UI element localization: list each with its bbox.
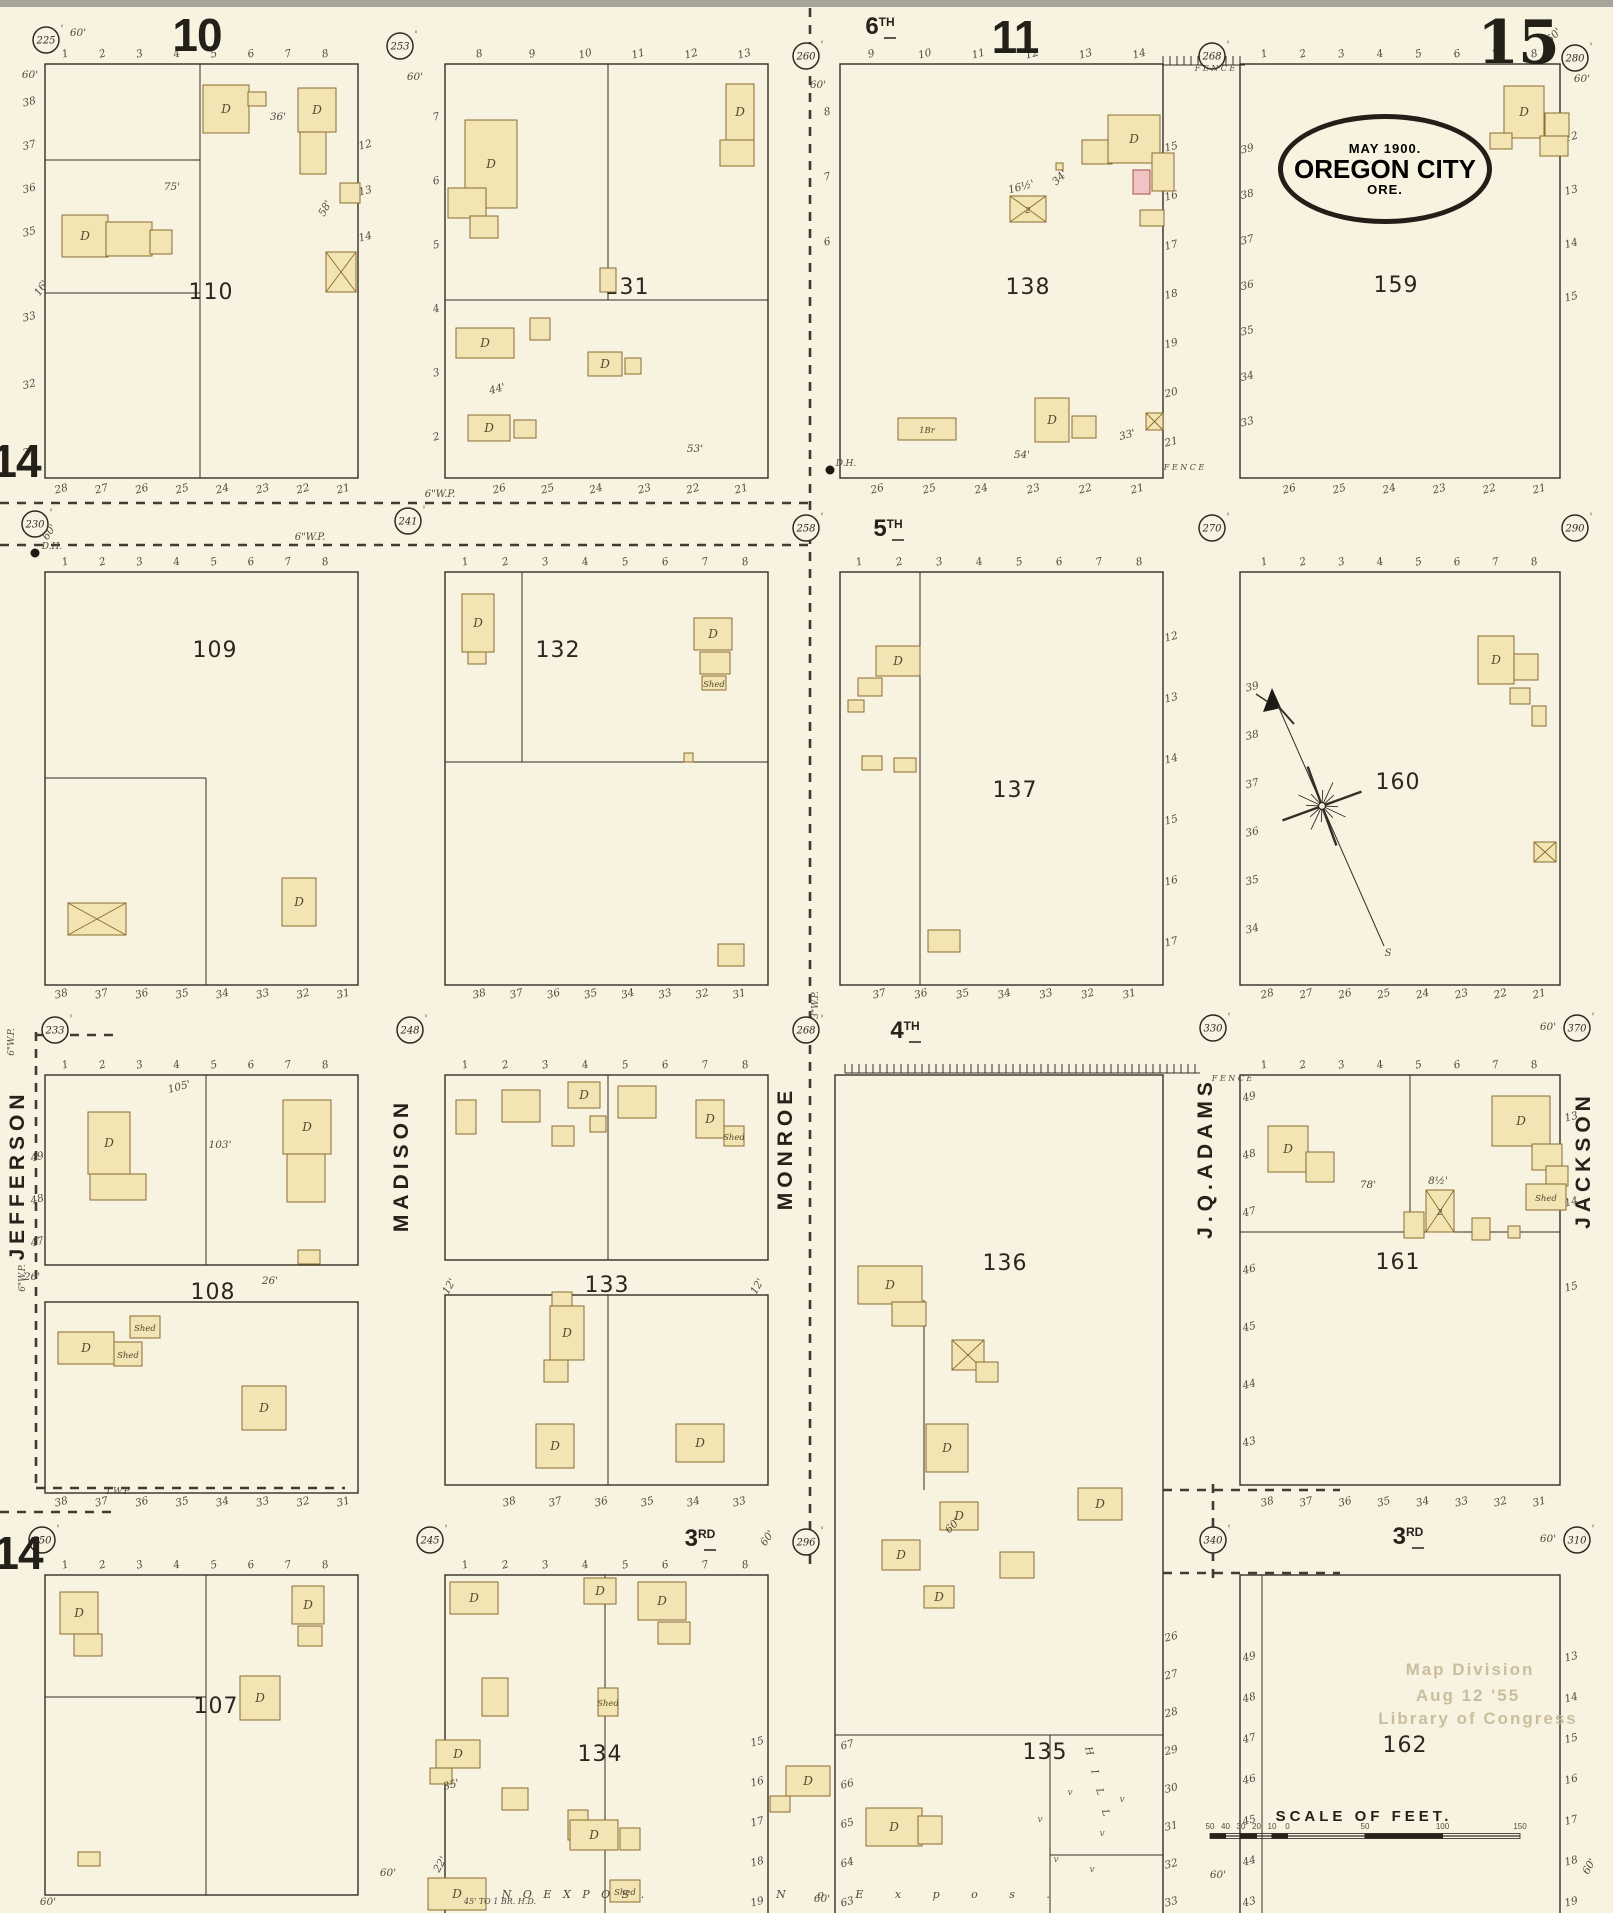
lot-number: 32 bbox=[1492, 1495, 1508, 1510]
lot-number: 65 bbox=[839, 1816, 855, 1831]
lot-number: 33 bbox=[255, 987, 271, 1002]
annotation: 60' bbox=[1540, 1533, 1556, 1545]
annotation: 6"W.P. bbox=[425, 489, 456, 500]
lot-number: 49 bbox=[1240, 1090, 1257, 1105]
block-number-162: 162 bbox=[1383, 1733, 1428, 1758]
lot-number: 5 bbox=[621, 555, 631, 568]
building-label: D bbox=[895, 1548, 906, 1562]
building-label: D bbox=[561, 1326, 572, 1340]
lot-number: 34 bbox=[1244, 922, 1260, 937]
lot-number: 7 bbox=[283, 47, 293, 60]
lot-number: 1 bbox=[61, 47, 70, 60]
building-frame bbox=[1510, 688, 1530, 704]
scale-bar-segment bbox=[1272, 1834, 1288, 1839]
page-ref-prime: ' bbox=[821, 40, 824, 51]
building-label: D bbox=[1282, 1142, 1293, 1156]
lot-number: 7 bbox=[1491, 555, 1501, 568]
building-frame bbox=[448, 188, 486, 218]
lot-number: 47 bbox=[1240, 1205, 1257, 1220]
compass-ornament-stroke bbox=[1278, 706, 1294, 724]
page-ref-prime: ' bbox=[821, 1014, 824, 1025]
lot-number: 31 bbox=[335, 1495, 351, 1510]
building-frame bbox=[892, 1302, 926, 1326]
lot-number: 36 bbox=[1337, 1495, 1353, 1510]
page-ref-number: 230 bbox=[24, 520, 45, 531]
lot-number: 12 bbox=[357, 138, 373, 153]
annotation: 60' bbox=[1540, 1021, 1556, 1033]
lot-number: 32 bbox=[295, 1495, 311, 1510]
street-name-3RD: 3RD bbox=[685, 1525, 716, 1552]
building-label: D bbox=[254, 1691, 265, 1705]
lot-number: 6 bbox=[661, 555, 671, 568]
annotation: 60' bbox=[380, 1867, 396, 1879]
building-frame bbox=[894, 758, 916, 772]
lot-number: 32 bbox=[21, 377, 37, 392]
building-label: D bbox=[293, 895, 304, 909]
page-ref-number: 290 bbox=[1564, 524, 1585, 535]
page-ref-number: 270 bbox=[1201, 524, 1222, 535]
lot-number: 36 bbox=[1244, 825, 1260, 840]
lot-number: 67 bbox=[839, 1738, 855, 1753]
lot-number: 28 bbox=[1162, 1705, 1179, 1720]
lot-number: 26 bbox=[1280, 482, 1297, 497]
lot-number: 2 bbox=[431, 430, 442, 444]
lot-number: 38 bbox=[53, 987, 69, 1002]
street-name-6TH: 6TH bbox=[865, 13, 894, 40]
lot-number: 13 bbox=[1078, 47, 1094, 62]
building-frame bbox=[150, 230, 172, 254]
building-frame bbox=[1404, 1212, 1424, 1238]
lot-number: 18 bbox=[749, 1855, 765, 1870]
annotation: 36' bbox=[270, 111, 286, 123]
annotation: 60' bbox=[1580, 1856, 1599, 1876]
lot-number: 46 bbox=[1240, 1262, 1257, 1277]
lot-number: 17 bbox=[1163, 238, 1179, 253]
building-label: D bbox=[694, 1436, 705, 1450]
lot-number: 7 bbox=[1491, 1058, 1501, 1071]
page-ref-prime: ' bbox=[821, 1526, 824, 1537]
page-ref-number: 296 bbox=[795, 1538, 816, 1549]
annotation: 12' bbox=[440, 1276, 459, 1296]
lot-number: 4 bbox=[974, 555, 984, 569]
lot-number: 5 bbox=[209, 1558, 219, 1571]
lot-number: 31 bbox=[1121, 987, 1137, 1002]
lot-number: 3 bbox=[541, 555, 551, 568]
lot-number: 34 bbox=[685, 1495, 701, 1510]
page-ref-prime: ' bbox=[1227, 40, 1230, 51]
lot-number: 3 bbox=[1337, 1058, 1347, 1071]
lot-number: 34 bbox=[214, 987, 230, 1002]
lot-number: 24 bbox=[214, 482, 231, 497]
annotation: v bbox=[1037, 1815, 1042, 1825]
lot-number: 23 bbox=[636, 482, 653, 497]
annotation: 105' bbox=[167, 1078, 192, 1096]
annotation: 44' bbox=[487, 381, 507, 397]
building-label: D bbox=[802, 1774, 813, 1788]
block-number-132: 132 bbox=[536, 638, 581, 663]
lot-number: 3 bbox=[432, 366, 442, 379]
lot-number: 19 bbox=[1163, 336, 1179, 351]
page-ref-prime: ' bbox=[1592, 1524, 1595, 1535]
lot-number: 13 bbox=[1563, 1650, 1579, 1665]
building-label: D bbox=[258, 1401, 269, 1415]
building-frame bbox=[620, 1828, 640, 1850]
building-label: Shed bbox=[723, 1133, 745, 1143]
page-ref-number: 241 bbox=[397, 517, 417, 528]
compass-south-label: S bbox=[1385, 948, 1392, 959]
annotation: 3"W.P. bbox=[811, 991, 821, 1019]
lot-number: 17 bbox=[1163, 935, 1179, 950]
lot-number: 14 bbox=[1563, 1690, 1579, 1705]
block-number-109: 109 bbox=[193, 638, 238, 663]
annotation: D.H. bbox=[41, 542, 63, 552]
building-frame bbox=[482, 1678, 508, 1716]
lot-number: 37 bbox=[508, 987, 524, 1002]
lot-number: 36 bbox=[134, 1495, 150, 1510]
lot-number: 14 bbox=[1563, 236, 1579, 251]
annotation: 78' bbox=[1360, 1179, 1376, 1191]
building-label: D bbox=[888, 1820, 899, 1834]
lot-number: 7 bbox=[1095, 555, 1105, 568]
page-ref-number: 245 bbox=[419, 1536, 439, 1547]
lot-number: 4 bbox=[171, 1558, 181, 1572]
lot-number: 17 bbox=[749, 1815, 765, 1830]
building-frame bbox=[340, 183, 360, 203]
building-frame bbox=[502, 1788, 528, 1810]
lot-number: 33 bbox=[21, 310, 37, 325]
page-ref-number: 248 bbox=[399, 1026, 419, 1037]
lot-number: 2 bbox=[97, 1558, 108, 1572]
lot-number: 4 bbox=[1374, 555, 1384, 569]
building-frame bbox=[300, 132, 326, 174]
map-title-state: ORE. bbox=[1367, 182, 1403, 197]
lot-number: 31 bbox=[1163, 1819, 1179, 1834]
building-frame bbox=[625, 358, 641, 374]
page-ref-prime: ' bbox=[70, 1014, 73, 1025]
lot-number: 31 bbox=[335, 987, 351, 1002]
building-frame bbox=[600, 268, 616, 292]
building-label: 2 bbox=[1436, 1208, 1442, 1218]
lot-number: 5 bbox=[209, 555, 219, 568]
lot-number: 2 bbox=[500, 1558, 511, 1572]
page-ref-number: 253 bbox=[389, 42, 409, 53]
lot-number: 5 bbox=[1015, 555, 1025, 568]
lot-number: 37 bbox=[1298, 1495, 1314, 1510]
scale-bar-segment bbox=[1365, 1834, 1443, 1839]
lot-number: 35 bbox=[174, 1495, 190, 1510]
page-ref-prime: ' bbox=[445, 1524, 448, 1535]
annotation: 60' bbox=[40, 1896, 56, 1908]
lot-number: 1 bbox=[1260, 555, 1269, 568]
block-number-108: 108 bbox=[191, 1280, 236, 1305]
scale-bar-segment bbox=[1241, 1834, 1257, 1839]
lot-number: 2 bbox=[97, 1058, 108, 1072]
lot-number: 35 bbox=[1244, 873, 1260, 888]
annotation: 75' bbox=[164, 181, 180, 193]
street-name-JEFFERSON: JEFFERSON bbox=[6, 1089, 29, 1260]
page-ref-prime: ' bbox=[821, 512, 824, 523]
lot-number: 23 bbox=[1024, 482, 1041, 497]
lot-number: 32 bbox=[1163, 1857, 1179, 1872]
lot-number: 2 bbox=[1297, 47, 1308, 61]
lot-number: 8 bbox=[1135, 555, 1145, 568]
lot-number: 3 bbox=[541, 1058, 551, 1071]
annotation: 6"W.P. bbox=[18, 1264, 28, 1292]
lot-number: 34 bbox=[1415, 1495, 1431, 1510]
lot-number: 33 bbox=[657, 987, 673, 1002]
adjacent-sheet-number-top-right: 11 bbox=[992, 10, 1039, 64]
lot-number: 8 bbox=[1530, 555, 1540, 568]
lot-number: 6 bbox=[1452, 555, 1462, 568]
building-frame bbox=[700, 652, 730, 674]
lot-number: 24 bbox=[1414, 987, 1431, 1002]
building-frame bbox=[514, 420, 536, 438]
lot-number: 4 bbox=[580, 555, 590, 569]
annotation: 45' TO 1 BR. H.D. bbox=[463, 1897, 536, 1906]
block-number-110: 110 bbox=[189, 280, 234, 305]
building-label: D bbox=[311, 103, 322, 117]
lot-number: 6 bbox=[823, 235, 833, 248]
building-label: Shed bbox=[597, 1699, 619, 1709]
scale-of-feet-label: SCALE OF FEET. bbox=[1276, 1808, 1453, 1825]
building-frame bbox=[74, 1634, 102, 1656]
building-frame bbox=[106, 222, 152, 256]
building-label: D bbox=[79, 229, 90, 243]
lot-number: 30 bbox=[1163, 1781, 1179, 1796]
lot-number: 8 bbox=[475, 47, 485, 60]
lot-number: 39 bbox=[1239, 142, 1255, 157]
lot-number: 49 bbox=[1240, 1650, 1257, 1665]
lot-number: 33 bbox=[255, 1495, 271, 1510]
scale-tick-label: 40 bbox=[1221, 1822, 1230, 1831]
annotation: 103' bbox=[209, 1139, 232, 1151]
lot-number: 31 bbox=[731, 987, 747, 1002]
lot-number: 5 bbox=[432, 238, 442, 251]
street-name-4TH: 4TH bbox=[890, 1017, 919, 1044]
annotation: 60' bbox=[1210, 1869, 1226, 1881]
lot-number: 19 bbox=[1563, 1895, 1579, 1910]
lot-number: 29 bbox=[1162, 1743, 1179, 1758]
lot-number: 1 bbox=[61, 1058, 70, 1071]
annotation: 6"W.P. bbox=[7, 1028, 17, 1056]
block-number-135: 135 bbox=[1023, 1740, 1068, 1765]
lot-number: 15 bbox=[1563, 290, 1579, 305]
lot-number: 4 bbox=[171, 555, 181, 569]
lot-number: 2 bbox=[500, 555, 511, 569]
lot-number: 8 bbox=[1530, 1058, 1540, 1071]
building-frame bbox=[976, 1362, 998, 1382]
block-108-outline bbox=[45, 1302, 358, 1493]
lot-number: 34 bbox=[620, 987, 636, 1002]
lot-number: 32 bbox=[694, 987, 710, 1002]
lot-number: 8 bbox=[321, 1558, 331, 1571]
lot-number: 10 bbox=[917, 47, 933, 62]
annotation: T.W.P. bbox=[105, 1487, 130, 1497]
building-frame bbox=[298, 1626, 322, 1646]
building-frame bbox=[1072, 416, 1096, 438]
lot-number: 37 bbox=[547, 1495, 563, 1510]
lot-number: 25 bbox=[1330, 482, 1347, 497]
lot-number: 36 bbox=[1239, 278, 1255, 293]
lot-number: 5 bbox=[209, 1058, 219, 1071]
lot-number: 2 bbox=[97, 555, 108, 569]
building-frame bbox=[1000, 1552, 1034, 1578]
page-ref-number: 258 bbox=[795, 524, 815, 535]
lot-number: 1 bbox=[461, 1058, 470, 1071]
building-label: D bbox=[301, 1120, 312, 1134]
lot-number: 44 bbox=[1240, 1377, 1257, 1392]
lot-number: 6 bbox=[432, 174, 442, 187]
lot-number: 22 bbox=[1480, 482, 1497, 497]
lot-number: 36 bbox=[546, 987, 562, 1002]
lot-number: 6 bbox=[246, 47, 256, 60]
building-label: D bbox=[704, 1112, 715, 1126]
lot-number: 38 bbox=[471, 987, 487, 1002]
lot-number: 7 bbox=[823, 170, 833, 183]
lot-number: 25 bbox=[920, 482, 937, 497]
page-ref-number: 233 bbox=[44, 1026, 64, 1037]
lot-number: 35 bbox=[955, 987, 971, 1002]
lot-number: 16 bbox=[1563, 1772, 1579, 1787]
annotation: 60' bbox=[810, 79, 826, 91]
lot-number: 7 bbox=[432, 110, 442, 123]
lot-number: 22 bbox=[1076, 482, 1093, 497]
lot-number: 32 bbox=[1080, 987, 1096, 1002]
building-label: 1Br bbox=[919, 426, 936, 436]
lot-number: 33 bbox=[1454, 1495, 1470, 1510]
lot-number: 37 bbox=[21, 138, 37, 153]
lot-number: 21 bbox=[1530, 987, 1547, 1002]
page-ref-prime: ' bbox=[1228, 1524, 1231, 1535]
building-frame bbox=[1540, 136, 1568, 156]
lot-number: 46 bbox=[1240, 1772, 1257, 1787]
lot-number: 8 bbox=[741, 1558, 751, 1571]
lot-number: 14 bbox=[1131, 47, 1147, 62]
lot-number: 6 bbox=[246, 1558, 256, 1571]
annotation: F E N C E bbox=[1163, 463, 1205, 472]
lot-number: 43 bbox=[1240, 1895, 1257, 1910]
lot-number: 38 bbox=[53, 1495, 69, 1510]
lot-number: 12 bbox=[1163, 630, 1179, 645]
lot-number: 7 bbox=[701, 555, 711, 568]
sheet-number: 15 bbox=[1477, 8, 1559, 78]
adjacent-sheet-number-left-upper: 14 bbox=[0, 434, 41, 488]
building-frame bbox=[1514, 654, 1538, 680]
building-frame bbox=[918, 1816, 942, 1844]
lot-number: 21 bbox=[1530, 482, 1547, 497]
lot-number: 26 bbox=[868, 482, 885, 497]
building-label: D bbox=[452, 1747, 463, 1761]
lot-number: 6 bbox=[1055, 555, 1065, 568]
lot-number: 13 bbox=[1563, 183, 1579, 198]
lot-number: 3 bbox=[935, 555, 945, 568]
lot-number: 36 bbox=[913, 987, 929, 1002]
lot-number: 22 bbox=[684, 482, 701, 497]
building-label: D bbox=[302, 1598, 313, 1612]
building-frame bbox=[1532, 706, 1546, 726]
building-frame bbox=[552, 1292, 572, 1306]
street-name-JQADAMS: J.Q.ADAMS bbox=[1194, 1077, 1217, 1239]
lot-number: 14 bbox=[1163, 752, 1179, 767]
building-label: D bbox=[707, 627, 718, 641]
lot-number: 23 bbox=[1430, 482, 1447, 497]
lot-number: 45 bbox=[1240, 1320, 1257, 1335]
building-label: D bbox=[103, 1136, 114, 1150]
page-ref-number: 330 bbox=[1203, 1024, 1223, 1035]
scale-tick-label: 50 bbox=[1206, 1822, 1215, 1831]
loc-stamp-line3: Library of Congress bbox=[1378, 1709, 1578, 1729]
lot-number: 2 bbox=[1297, 1058, 1308, 1072]
lot-number: 1 bbox=[1260, 1058, 1269, 1071]
lot-number: 3 bbox=[135, 1058, 145, 1071]
page-ref-number: 260 bbox=[795, 52, 816, 63]
page-ref-number: 280 bbox=[1564, 54, 1585, 65]
lot-number: 14 bbox=[357, 230, 373, 245]
annotation: v bbox=[1053, 1855, 1058, 1865]
lot-number: 33 bbox=[1239, 415, 1255, 430]
lot-number: 27 bbox=[1297, 987, 1314, 1002]
lot-number: 22 bbox=[294, 482, 311, 497]
annotation: 22' bbox=[431, 1854, 450, 1875]
lot-number: 33 bbox=[731, 1495, 747, 1510]
lot-number: 5 bbox=[1414, 47, 1424, 60]
building-frame bbox=[718, 944, 744, 966]
building-frame bbox=[928, 930, 960, 952]
lot-number: 35 bbox=[21, 225, 37, 240]
page-ref-number: 268 bbox=[1201, 52, 1221, 63]
building-frame bbox=[248, 92, 266, 106]
annotation: 60' bbox=[1574, 73, 1590, 85]
building-frame bbox=[618, 1086, 656, 1118]
sanborn-map-sheet: 1101234567828272625242322213837363533323… bbox=[0, 0, 1613, 1913]
building-frame bbox=[862, 756, 882, 770]
lot-number: 38 bbox=[21, 95, 37, 110]
building-frame bbox=[720, 140, 754, 166]
lot-number: 36 bbox=[21, 181, 37, 196]
block-number-137: 137 bbox=[993, 778, 1038, 803]
building-label: Shed bbox=[1535, 1194, 1557, 1204]
page-ref-prime: ' bbox=[1590, 42, 1593, 53]
building-label: D bbox=[483, 421, 494, 435]
page-ref-prime: ' bbox=[415, 30, 418, 41]
loc-stamp-line1: Map Division bbox=[1406, 1660, 1535, 1680]
lot-number: 7 bbox=[283, 1558, 293, 1571]
annotation: 60' bbox=[22, 69, 38, 81]
annotation: v bbox=[1089, 1865, 1094, 1875]
lot-number: 3 bbox=[135, 47, 145, 60]
building-brick bbox=[1133, 170, 1150, 194]
lot-number: 37 bbox=[871, 987, 887, 1002]
annotation: v bbox=[1099, 1829, 1104, 1839]
lot-number: 22 bbox=[1492, 987, 1509, 1002]
lot-number: 13 bbox=[1163, 691, 1179, 706]
annotation: N o E x p o s . bbox=[775, 1888, 1064, 1901]
lot-number: 3 bbox=[135, 555, 145, 568]
lot-number: 36 bbox=[593, 1495, 609, 1510]
lot-number: 1 bbox=[461, 1558, 470, 1571]
lot-number: 24 bbox=[972, 482, 989, 497]
building-label: D bbox=[578, 1088, 589, 1102]
building-label: D bbox=[656, 1594, 667, 1608]
building-frame bbox=[470, 216, 498, 238]
block-number-159: 159 bbox=[1374, 273, 1419, 298]
lot-number: 21 bbox=[1128, 482, 1145, 497]
lot-number: 6 bbox=[1452, 1058, 1462, 1071]
page-ref-prime: ' bbox=[425, 1014, 428, 1025]
lot-number: 21 bbox=[334, 482, 351, 497]
building-frame bbox=[468, 652, 486, 664]
lot-number: 10 bbox=[577, 47, 593, 62]
